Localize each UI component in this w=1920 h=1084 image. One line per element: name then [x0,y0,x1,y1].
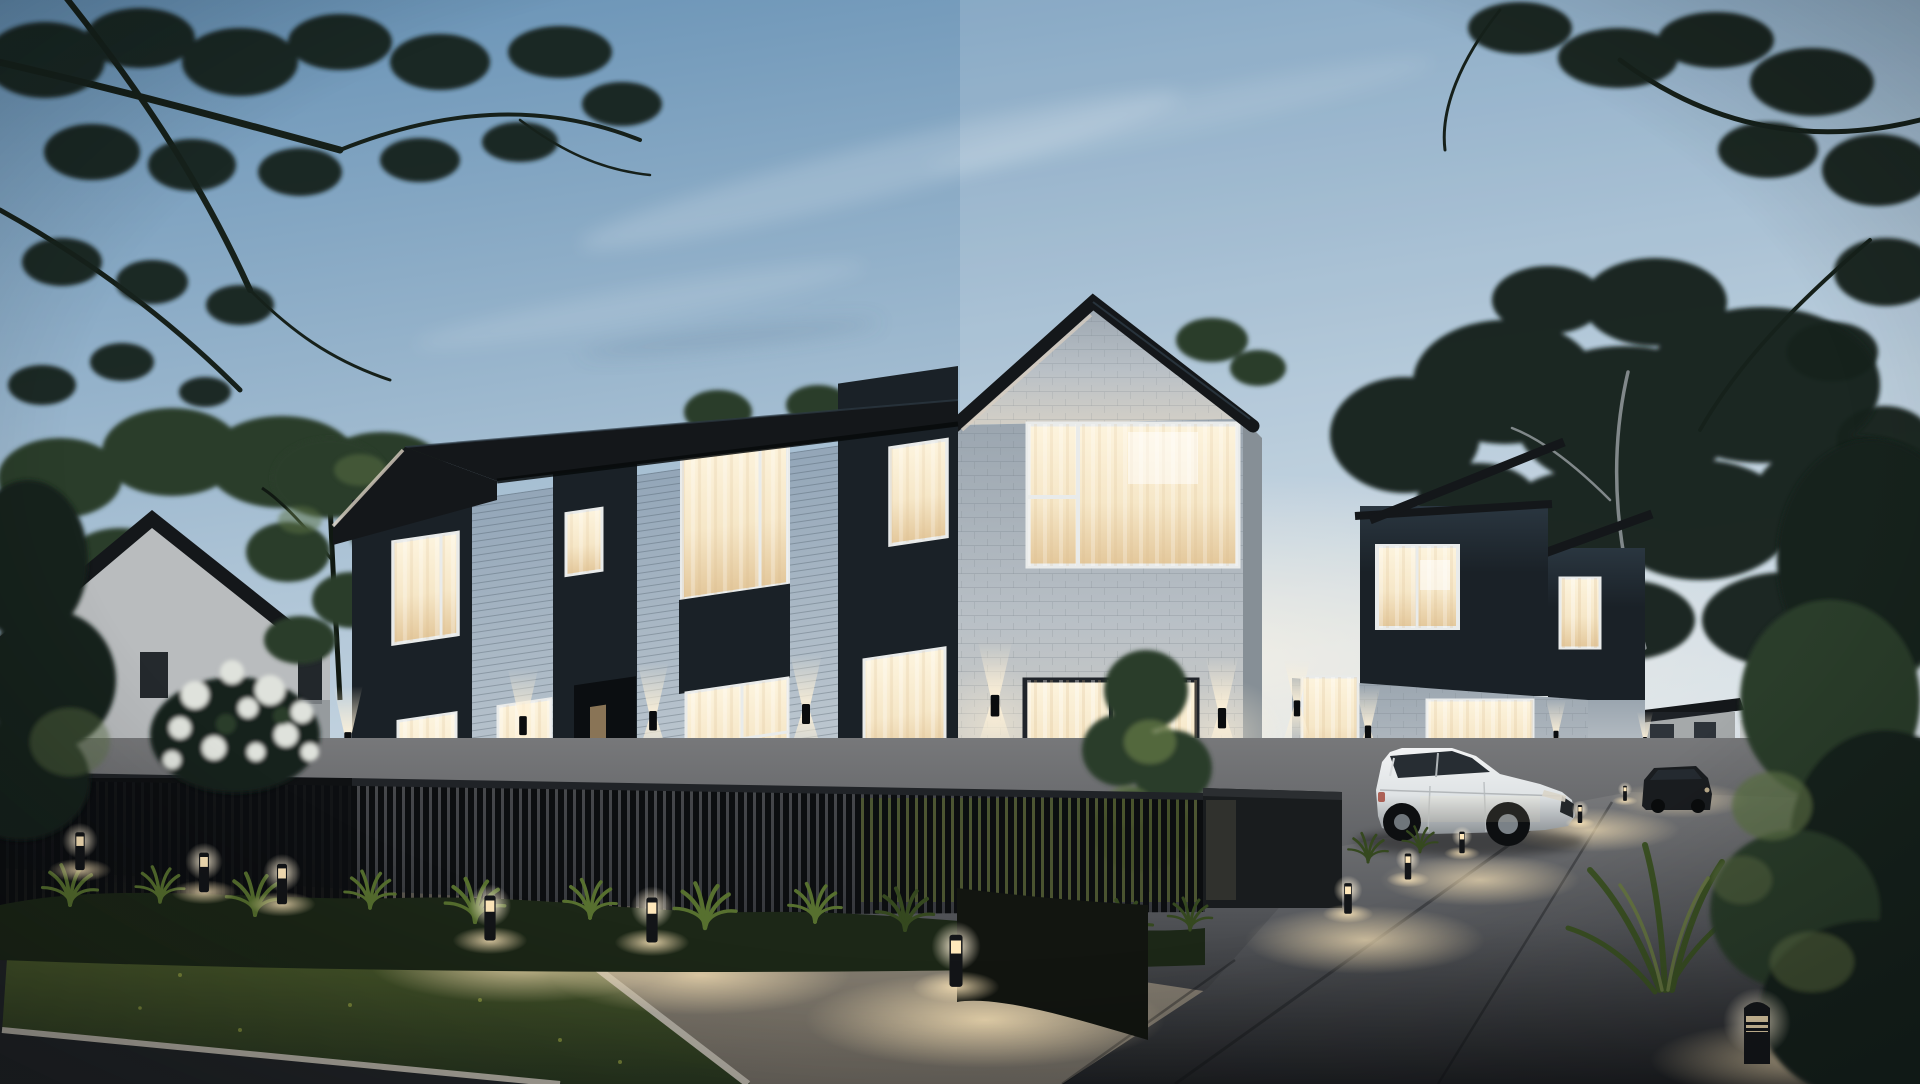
vignette [0,0,1920,1084]
rendering-canvas [0,0,1920,1084]
townhouse-dusk-scene [0,0,1920,1084]
